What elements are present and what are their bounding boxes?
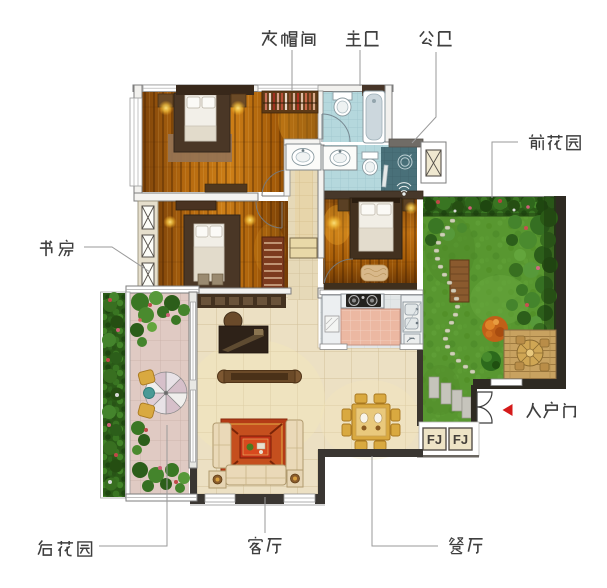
svg-text:FJ: FJ: [453, 432, 468, 447]
svg-text:FJ: FJ: [427, 432, 442, 447]
